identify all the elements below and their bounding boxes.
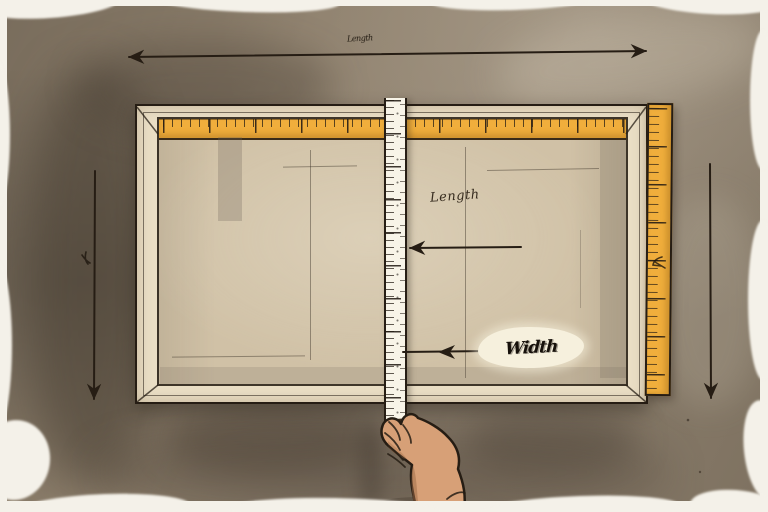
measuring-tape xyxy=(384,98,407,434)
pencil-line-vertical-right xyxy=(465,147,466,378)
interior-shading-left xyxy=(218,137,242,221)
pencil-line-vertical-left xyxy=(310,150,311,360)
wall-highlight-top-right xyxy=(492,0,768,120)
hand-holding-tape xyxy=(355,395,505,512)
width-label: Width xyxy=(504,336,557,359)
wall-highlight-right xyxy=(657,197,762,407)
pencil-line-vertical-far-right xyxy=(580,230,581,308)
illustration-page: Length Length Width xyxy=(0,0,768,512)
interior-shading-right xyxy=(600,140,626,378)
right-ruler xyxy=(645,103,674,396)
hand-outline xyxy=(382,414,465,512)
top-dimension-label: Length xyxy=(347,33,373,43)
